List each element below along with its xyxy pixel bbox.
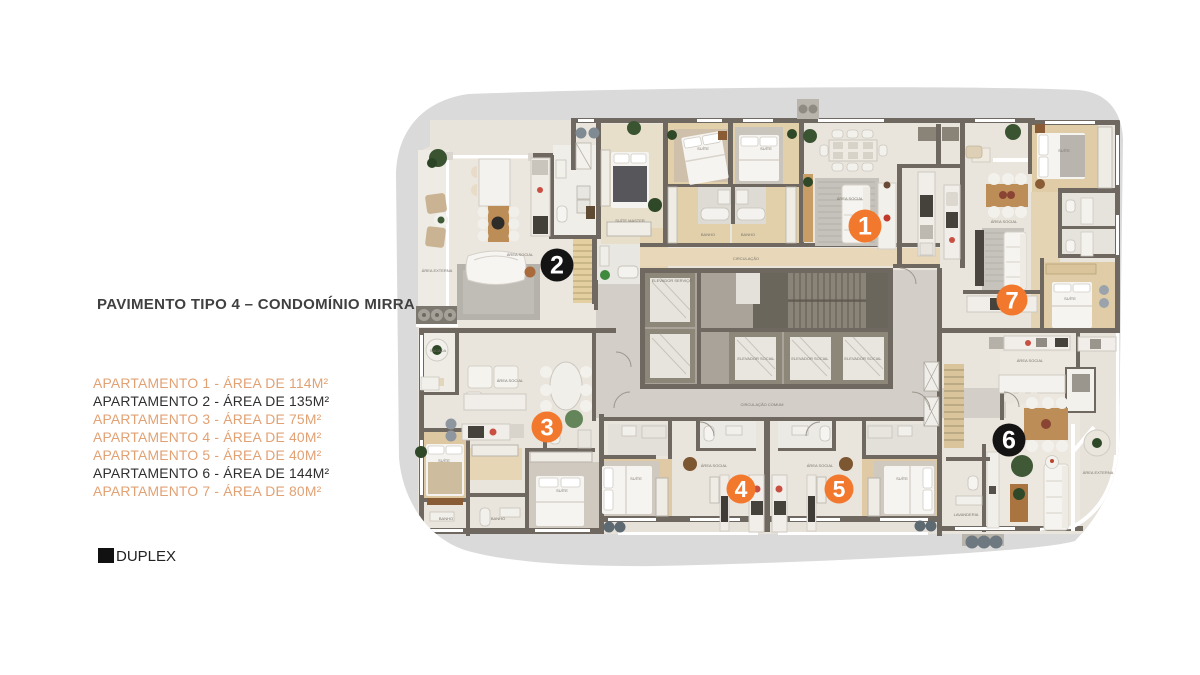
svg-text:BANHO: BANHO <box>491 516 505 521</box>
svg-text:SUÍTE MASTER: SUÍTE MASTER <box>615 218 645 223</box>
svg-text:CIRCULAÇÃO: CIRCULAÇÃO <box>733 256 759 261</box>
svg-text:SUÍTE: SUÍTE <box>896 476 908 481</box>
svg-text:SUÍTE: SUÍTE <box>760 146 772 151</box>
svg-text:3: 3 <box>540 415 553 442</box>
svg-text:ELEVADOR SERVIÇO: ELEVADOR SERVIÇO <box>652 278 693 283</box>
svg-text:ÁREA SOCIAL: ÁREA SOCIAL <box>507 252 534 257</box>
svg-text:ÁREA SOCIAL: ÁREA SOCIAL <box>837 196 864 201</box>
svg-text:ÁREA SOCIAL: ÁREA SOCIAL <box>701 463 728 468</box>
svg-text:SUÍTE: SUÍTE <box>630 476 642 481</box>
svg-text:SACADA: SACADA <box>430 348 447 353</box>
svg-text:ELEVADOR SOCIAL: ELEVADOR SOCIAL <box>737 356 775 361</box>
svg-text:SUÍTE: SUÍTE <box>697 146 709 151</box>
svg-text:ELEVADOR SOCIAL: ELEVADOR SOCIAL <box>844 356 882 361</box>
svg-text:ÁREA SOCIAL: ÁREA SOCIAL <box>1017 358 1044 363</box>
svg-text:ÁREA EXTERNA: ÁREA EXTERNA <box>1083 470 1114 475</box>
svg-text:SUÍTE: SUÍTE <box>556 488 568 493</box>
svg-text:SUÍTE: SUÍTE <box>1064 296 1076 301</box>
svg-text:ÁREA SOCIAL: ÁREA SOCIAL <box>807 463 834 468</box>
svg-text:CIRCULAÇÃO COMUM: CIRCULAÇÃO COMUM <box>741 402 784 407</box>
svg-text:BANHO: BANHO <box>439 516 453 521</box>
svg-text:1: 1 <box>858 213 872 241</box>
svg-text:BANHO: BANHO <box>701 232 715 237</box>
svg-text:LAVANDERIA: LAVANDERIA <box>954 512 979 517</box>
svg-text:7: 7 <box>1005 288 1018 315</box>
svg-text:Cond B | Tipo 04: Cond B | Tipo 04 <box>1050 580 1084 585</box>
svg-text:5: 5 <box>833 476 846 502</box>
svg-text:6: 6 <box>1002 427 1016 455</box>
svg-text:4: 4 <box>735 476 748 502</box>
svg-text:SUÍTE: SUÍTE <box>1058 148 1070 153</box>
svg-text:ÁREA EXTERNA: ÁREA EXTERNA <box>422 268 453 273</box>
svg-text:ÁREA SOCIAL: ÁREA SOCIAL <box>991 219 1018 224</box>
svg-text:SUÍTE: SUÍTE <box>438 458 450 463</box>
svg-text:ÁREA SOCIAL: ÁREA SOCIAL <box>497 378 524 383</box>
svg-text:2: 2 <box>550 252 564 280</box>
svg-text:ELEVADOR SOCIAL: ELEVADOR SOCIAL <box>791 356 829 361</box>
svg-text:BANHO: BANHO <box>741 232 755 237</box>
